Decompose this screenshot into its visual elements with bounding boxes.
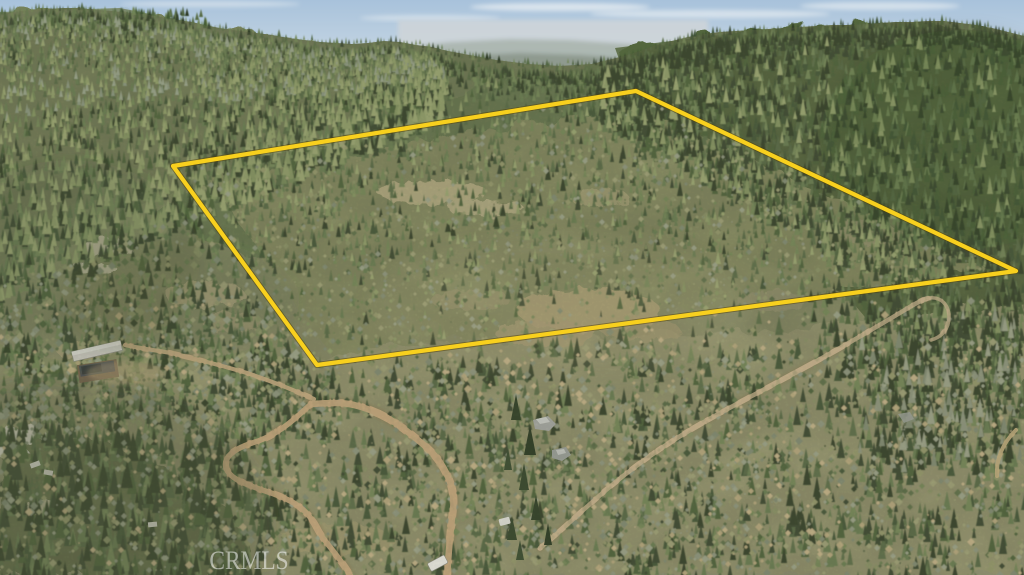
svg-text:CRMLS: CRMLS <box>209 547 288 575</box>
